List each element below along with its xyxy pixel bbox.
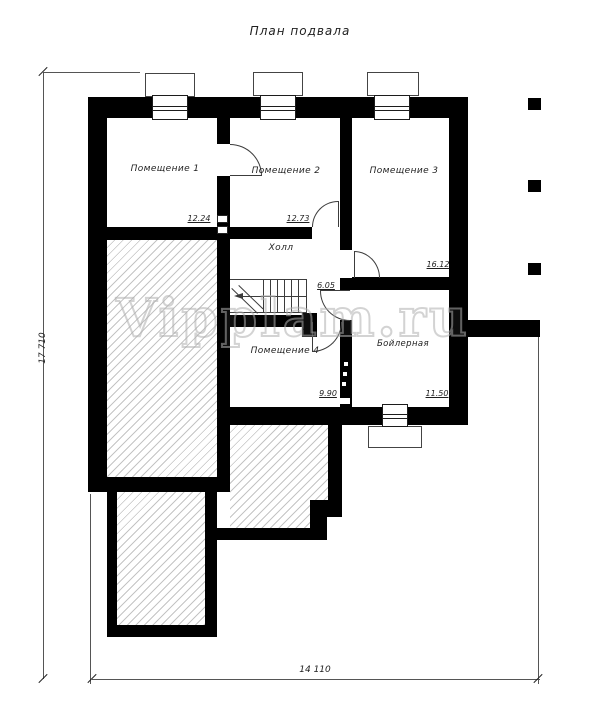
- room-label-3: Помещение 3: [358, 166, 450, 176]
- vent-channel: [344, 362, 348, 366]
- stair-direction-arrow: [234, 293, 243, 299]
- door-leaf: [338, 201, 339, 227]
- window-well: [145, 73, 195, 97]
- room-area-hall: 6.05: [309, 281, 343, 290]
- hatched-area-terrace-step: [230, 425, 310, 528]
- vent-channel: [342, 382, 346, 386]
- wall-outer-bottom: [217, 407, 468, 425]
- room-label-4: Помещение 4: [240, 346, 330, 356]
- wall-right-extension: [463, 320, 540, 337]
- door-opening-room3: [340, 250, 352, 278]
- column-marker: [528, 98, 541, 110]
- window-frame-line: [153, 110, 187, 111]
- vent-channel: [343, 372, 347, 376]
- room-area-3: 16.12: [421, 260, 455, 269]
- hatched-area-left: [107, 240, 217, 477]
- window-frame-line: [261, 110, 295, 111]
- room-area-2: 12.73: [281, 214, 315, 223]
- wall-terrace-bottom: [215, 528, 327, 540]
- window-frame-line: [375, 106, 409, 107]
- drawing-title: План подвала: [230, 24, 370, 38]
- dimension-label-width: 14 110: [270, 665, 360, 675]
- window-frame-line: [383, 418, 407, 419]
- window-frame-line: [383, 414, 407, 415]
- door-swing-arc: [312, 201, 338, 227]
- door-opening-room1: [217, 144, 230, 176]
- dimension-label-height: 17 710: [38, 299, 48, 397]
- room-area-4: 9.90: [313, 389, 343, 398]
- threshold-mark: [338, 398, 350, 404]
- window: [152, 95, 188, 120]
- window-frame-line: [261, 106, 295, 107]
- window-well: [368, 426, 422, 448]
- wall-porch-right: [205, 492, 217, 637]
- wall-below-room3: [352, 277, 468, 290]
- hatched-area-porch: [117, 492, 205, 625]
- column-marker: [528, 263, 541, 275]
- window-frame-line: [153, 106, 187, 107]
- room-label-1: Помещение 1: [115, 164, 215, 174]
- extension-line-bottom-left: [90, 494, 91, 684]
- room-label-boiler: Бойлерная: [368, 339, 438, 349]
- vent-duct: [217, 226, 228, 234]
- wall-left-section-bottom: [88, 477, 230, 492]
- room-label-hall: Холл: [258, 243, 304, 253]
- window-frame-line: [375, 110, 409, 111]
- window-well: [367, 72, 419, 96]
- room-area-boiler: 11.50: [419, 389, 455, 398]
- wall-outer-left: [88, 97, 107, 492]
- floor-plan-basement: План подвала 17 710 14 110: [0, 0, 600, 720]
- wall-porch-left: [107, 492, 117, 637]
- door-swing-arc: [354, 251, 380, 278]
- dimension-line-horizontal: [92, 679, 540, 680]
- wall-below-room1: [88, 227, 230, 240]
- wall-porch-bottom: [107, 625, 217, 637]
- room-area-1: 12.24: [182, 214, 216, 223]
- vent-duct: [217, 215, 228, 223]
- extension-line-top: [43, 72, 140, 73]
- room-label-2: Помещение 2: [240, 166, 332, 176]
- stair-direction-line: [242, 296, 306, 297]
- stair-tread: [306, 280, 307, 312]
- window: [382, 404, 408, 427]
- window-well: [253, 72, 303, 96]
- window: [260, 95, 296, 120]
- column-marker: [528, 180, 541, 192]
- door-opening-room2: [312, 227, 340, 239]
- extension-line-right: [538, 337, 539, 684]
- window: [374, 95, 410, 120]
